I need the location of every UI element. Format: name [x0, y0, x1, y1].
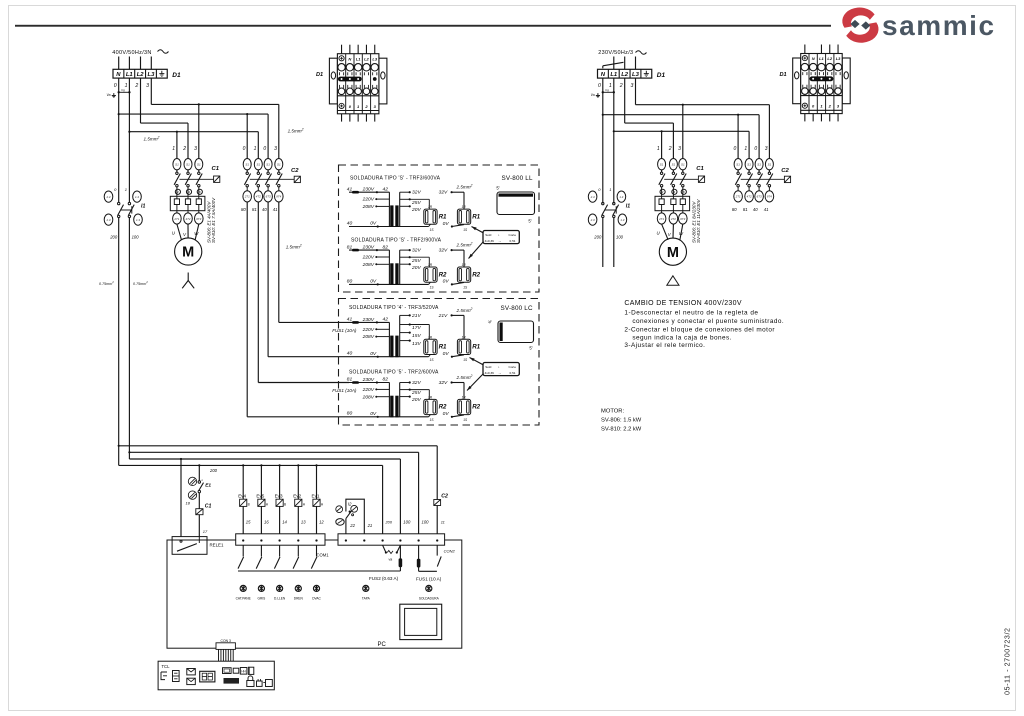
svg-text:1.4: 1.4 — [619, 195, 623, 199]
svg-text:208V: 208V — [362, 262, 375, 268]
svg-text:R1: R1 — [472, 213, 480, 220]
svg-text:S1: S1 — [747, 163, 751, 167]
svg-text:S1: S1 — [672, 163, 676, 167]
svg-text:208V: 208V — [362, 204, 375, 210]
svg-text:1R: 1R — [428, 335, 433, 339]
svg-text:100: 100 — [422, 519, 430, 524]
svg-text:0: 0 — [243, 146, 246, 152]
svg-text:S1: S1 — [175, 163, 179, 167]
svg-text:D1: D1 — [172, 72, 181, 79]
svg-text:0: 0 — [754, 146, 757, 152]
svg-text:11: 11 — [441, 519, 445, 524]
svg-text:42: 42 — [383, 186, 389, 192]
svg-text:21V: 21V — [411, 313, 421, 319]
svg-text:N: N — [116, 72, 121, 78]
svg-text:2T1: 2T1 — [735, 195, 741, 199]
svg-text:32V: 32V — [412, 248, 421, 254]
svg-text:SV-800 LL: SV-800 LL — [502, 175, 534, 182]
svg-text:FUS1 (10A): FUS1 (10A) — [332, 388, 357, 393]
svg-text:220V: 220V — [362, 387, 375, 393]
svg-text:21V: 21V — [438, 313, 448, 319]
svg-text:FUS2 (0.63 A): FUS2 (0.63 A) — [369, 576, 399, 581]
svg-text:6T3: 6T3 — [680, 217, 685, 221]
svg-text:400V/50Hz/3N: 400V/50Hz/3N — [112, 50, 151, 56]
svg-text:1.5mm2: 1.5mm2 — [288, 128, 304, 134]
svg-text:1: 1 — [744, 146, 747, 152]
svg-text:D1: D1 — [316, 72, 323, 78]
svg-text:32V: 32V — [439, 248, 448, 254]
svg-text:S1: S1 — [768, 163, 772, 167]
svg-text:SOLDADURA TIPO '4' - TRF3/520V: SOLDADURA TIPO '4' - TRF3/520VA — [349, 305, 439, 311]
svg-text:3: 3 — [765, 146, 768, 152]
svg-text:220V: 220V — [362, 255, 375, 261]
svg-text:1.4: 1.4 — [135, 195, 139, 199]
svg-text:I2: I2 — [348, 502, 352, 507]
svg-text:80: 80 — [347, 411, 353, 417]
svg-text:SOLDADURA TIPO 'S' - TRF3/600V: SOLDADURA TIPO 'S' - TRF3/600VA — [350, 176, 441, 182]
svg-text:8T4: 8T4 — [767, 195, 772, 199]
svg-text:1R: 1R — [462, 335, 467, 339]
svg-text:82: 82 — [383, 377, 389, 383]
svg-text:1.3: 1.3 — [136, 218, 140, 222]
svg-text:1.5mm2: 1.5mm2 — [286, 244, 302, 250]
svg-text:COM1: COM1 — [317, 552, 330, 557]
svg-text:0: 0 — [598, 83, 601, 89]
svg-text:SV-806: 1.5 kW: SV-806: 1.5 kW — [601, 418, 642, 424]
svg-text:DVAC: DVAC — [312, 597, 321, 601]
svg-text:80: 80 — [241, 207, 246, 212]
svg-text:4x0,36: 4x0,36 — [485, 371, 495, 375]
svg-text:0: 0 — [263, 146, 266, 152]
svg-text:C1: C1 — [212, 166, 220, 172]
svg-text:16: 16 — [264, 520, 269, 525]
svg-text:GRIS: GRIS — [258, 597, 266, 601]
svg-text:0.75mm2: 0.75mm2 — [133, 281, 148, 286]
svg-text:208V: 208V — [362, 334, 375, 340]
svg-text:3: 3 — [274, 146, 277, 152]
svg-text:1: 1 — [125, 187, 127, 192]
svg-text:0: 0 — [734, 146, 737, 152]
svg-text:40: 40 — [347, 220, 353, 226]
svg-text:→: → — [498, 371, 501, 375]
svg-text:25V: 25V — [411, 200, 421, 206]
svg-text:S1: S1 — [736, 163, 740, 167]
svg-text:FUS1 (10A): FUS1 (10A) — [332, 328, 357, 333]
svg-text:220V: 220V — [362, 327, 375, 333]
svg-text:2T1: 2T1 — [658, 217, 664, 221]
svg-text:L1: L1 — [126, 72, 133, 78]
svg-text:conexiones y conectar el puent: conexiones y conectar el puente suminist… — [632, 318, 784, 325]
svg-text:18: 18 — [186, 501, 191, 506]
svg-text:0V: 0V — [443, 221, 450, 227]
svg-text:TAPA: TAPA — [362, 597, 371, 601]
svg-text:I1: I1 — [626, 204, 630, 210]
svg-text:N: N — [348, 56, 351, 61]
svg-text:2T1: 2T1 — [173, 217, 179, 221]
svg-text:40: 40 — [753, 207, 758, 212]
svg-text:3: 3 — [194, 146, 197, 152]
svg-text:PC: PC — [378, 642, 387, 648]
svg-text:05-11 - 2700723/2: 05-11 - 2700723/2 — [1003, 627, 1012, 695]
svg-text:42: 42 — [383, 317, 389, 323]
svg-text:segun indica la caja de bones.: segun indica la caja de bones. — [632, 335, 731, 342]
svg-text:200: 200 — [593, 235, 602, 240]
svg-text:1R: 1R — [428, 395, 433, 399]
svg-text:4T2: 4T2 — [186, 217, 191, 221]
svg-text:1: 1 — [172, 146, 175, 152]
svg-text:S1: S1 — [197, 163, 201, 167]
svg-text:41: 41 — [273, 207, 278, 212]
svg-text:SOLDADURA TIPO 'S' - TRF2/900V: SOLDADURA TIPO 'S' - TRF2/900VA — [351, 238, 442, 244]
svg-text:SOLDADURA TIPO '5' - TRF2/600V: SOLDADURA TIPO '5' - TRF2/600VA — [349, 370, 439, 376]
svg-text:2.3: 2.3 — [105, 218, 110, 222]
svg-text:R2: R2 — [472, 271, 480, 278]
svg-text:→: → — [498, 239, 501, 243]
svg-text:40: 40 — [262, 207, 267, 212]
svg-text:40: 40 — [347, 351, 353, 357]
svg-text:81: 81 — [743, 207, 748, 212]
svg-text:va: va — [389, 558, 393, 562]
svg-text:SV-810: E1 7.5A/400V: SV-810: E1 7.5A/400V — [211, 197, 216, 243]
svg-text:2-Conectar el bloque de conexi: 2-Conectar el bloque de conexiones del m… — [624, 326, 775, 333]
svg-text:0V: 0V — [370, 411, 377, 417]
svg-text:230V/50Hz/3: 230V/50Hz/3 — [598, 50, 633, 56]
svg-text:6T3: 6T3 — [266, 195, 271, 199]
svg-text:sammic: sammic — [882, 10, 996, 41]
svg-text:1: 1 — [657, 146, 660, 152]
svg-text:Cg: Cg — [121, 88, 125, 92]
svg-text:2.5mm2: 2.5mm2 — [456, 242, 473, 248]
svg-text:4T2: 4T2 — [256, 195, 261, 199]
svg-text:L2: L2 — [137, 72, 145, 78]
svg-text:R2: R2 — [439, 404, 447, 411]
svg-text:25V: 25V — [411, 258, 421, 264]
svg-text:13V: 13V — [412, 341, 421, 347]
svg-text:C2: C2 — [781, 168, 789, 174]
svg-text:Ev1: Ev1 — [312, 493, 320, 498]
svg-text:'5': '5' — [529, 346, 533, 351]
svg-text:200: 200 — [385, 519, 393, 524]
svg-text:SOLDADURA: SOLDADURA — [419, 597, 440, 601]
svg-text:2.4: 2.4 — [590, 195, 595, 199]
svg-text:1R: 1R — [462, 205, 467, 209]
svg-text:32V: 32V — [412, 190, 421, 196]
svg-text:2.5mm2: 2.5mm2 — [456, 307, 473, 313]
svg-text:1: 1 — [125, 83, 128, 89]
svg-text:CON2: CON2 — [444, 548, 456, 553]
svg-text:200: 200 — [209, 468, 218, 473]
svg-text:0: 0 — [114, 83, 117, 89]
svg-text:L2: L2 — [364, 56, 369, 61]
svg-text:C1: C1 — [696, 166, 704, 172]
svg-text:B: B — [248, 502, 250, 506]
svg-text:1-Desconectar el neutro de la: 1-Desconectar el neutro de la regleta de — [624, 309, 758, 316]
svg-text:32V: 32V — [439, 190, 448, 196]
svg-text:R1: R1 — [439, 213, 447, 220]
svg-text:C1: C1 — [205, 504, 212, 510]
svg-text:S1: S1 — [277, 163, 281, 167]
svg-text:Ev3: Ev3 — [275, 493, 283, 498]
svg-text:R2: R2 — [439, 271, 447, 278]
svg-text:4T2: 4T2 — [671, 217, 676, 221]
svg-text:2: 2 — [668, 146, 672, 152]
svg-text:208V: 208V — [362, 394, 375, 400]
svg-text:3: 3 — [146, 83, 149, 89]
svg-text:1: 1 — [609, 187, 611, 192]
svg-text:C2: C2 — [291, 168, 299, 174]
svg-text:2.4: 2.4 — [105, 195, 110, 199]
svg-text:Ev4: Ev4 — [238, 493, 246, 498]
svg-text:3: 3 — [631, 83, 634, 89]
svg-text:1: 1 — [254, 146, 257, 152]
svg-text:2: 2 — [182, 146, 186, 152]
svg-text:15V: 15V — [412, 333, 421, 339]
svg-text:20V: 20V — [411, 265, 421, 271]
svg-text:L1: L1 — [356, 56, 361, 61]
svg-text:↓: ↓ — [498, 233, 500, 237]
svg-text:1.3: 1.3 — [620, 218, 624, 222]
svg-text:M: M — [182, 245, 194, 261]
svg-text:2: 2 — [176, 190, 179, 194]
svg-text:20V: 20V — [411, 397, 421, 403]
svg-text:230V: 230V — [362, 187, 375, 193]
svg-text:Va: Va — [591, 93, 595, 97]
svg-text:81: 81 — [252, 207, 257, 212]
svg-text:1.5mm2: 1.5mm2 — [144, 136, 160, 142]
svg-text:Corte: Corte — [509, 233, 517, 237]
svg-text:20V: 20V — [411, 207, 421, 213]
svg-text:L3: L3 — [148, 72, 156, 78]
svg-text:6T3: 6T3 — [196, 217, 201, 221]
svg-text:81: 81 — [347, 244, 353, 250]
svg-text:0V: 0V — [443, 411, 450, 417]
svg-text:M: M — [667, 245, 679, 261]
svg-text:0V: 0V — [370, 221, 377, 227]
svg-text:N: N — [812, 56, 815, 61]
svg-text:1R: 1R — [428, 263, 433, 267]
svg-text:SV-810: E1 11A/230V: SV-810: E1 11A/230V — [696, 198, 701, 243]
svg-text:2.5mm2: 2.5mm2 — [456, 184, 473, 190]
svg-text:Va: Va — [107, 93, 111, 97]
svg-text:R1: R1 — [472, 344, 480, 351]
svg-text:CAT.PANE: CAT.PANE — [236, 597, 251, 601]
svg-text:Cg: Cg — [605, 88, 609, 92]
svg-text:25V: 25V — [411, 390, 421, 396]
svg-text:12: 12 — [319, 520, 324, 525]
svg-text:DREN: DREN — [294, 597, 304, 601]
svg-text:D.LLEN: D.LLEN — [274, 597, 286, 601]
svg-text:0V: 0V — [443, 279, 450, 285]
svg-text:13: 13 — [301, 520, 306, 525]
svg-text:1R: 1R — [462, 263, 467, 267]
svg-text:81: 81 — [347, 377, 353, 383]
svg-text:I1: I1 — [141, 204, 145, 210]
svg-text:2.5mm2: 2.5mm2 — [456, 374, 473, 380]
svg-text:RELE1: RELE1 — [210, 543, 224, 548]
svg-text:0,51: 0,51 — [510, 371, 516, 375]
svg-text:L3: L3 — [632, 72, 640, 78]
svg-text:B: B — [284, 502, 286, 506]
svg-text:22: 22 — [349, 523, 355, 528]
svg-text:200: 200 — [109, 235, 118, 240]
svg-text:2: 2 — [661, 190, 664, 194]
svg-text:S1: S1 — [660, 163, 664, 167]
svg-text:D1: D1 — [780, 72, 787, 78]
svg-text:220V: 220V — [362, 197, 375, 203]
svg-text:0V: 0V — [370, 351, 377, 357]
svg-text:41: 41 — [347, 317, 353, 323]
svg-text:8T4: 8T4 — [276, 195, 281, 199]
svg-text:14: 14 — [282, 520, 287, 525]
svg-text:1: 1 — [609, 83, 612, 89]
svg-text:'4': '4' — [488, 320, 492, 325]
svg-text:'5': '5' — [528, 219, 532, 224]
svg-text:41: 41 — [347, 186, 353, 192]
svg-text:C2: C2 — [441, 494, 448, 500]
svg-text:L1: L1 — [610, 72, 617, 78]
svg-text:32V: 32V — [412, 380, 421, 386]
svg-text:0V: 0V — [370, 279, 377, 285]
svg-text:230V: 230V — [362, 317, 375, 323]
svg-text:17: 17 — [203, 529, 208, 534]
svg-text:S1: S1 — [245, 163, 249, 167]
svg-text:15: 15 — [246, 520, 251, 525]
svg-text:Sold: Sold — [485, 365, 491, 369]
svg-text:2: 2 — [134, 83, 138, 89]
svg-text:↓: ↓ — [498, 365, 500, 369]
svg-text:L3: L3 — [372, 56, 377, 61]
svg-text:82: 82 — [383, 244, 389, 250]
svg-text:230V: 230V — [362, 377, 375, 383]
svg-text:2.3: 2.3 — [590, 218, 595, 222]
svg-text:32V: 32V — [439, 380, 448, 386]
svg-text:80: 80 — [347, 278, 353, 284]
svg-text:L2: L2 — [621, 72, 629, 78]
svg-text:3-Ajustar el rele termico.: 3-Ajustar el rele termico. — [624, 342, 705, 349]
svg-text:Ev2: Ev2 — [293, 493, 301, 498]
svg-text:4x0,36: 4x0,36 — [485, 239, 495, 243]
svg-text:MOTOR:: MOTOR: — [601, 409, 624, 415]
svg-text:21: 21 — [367, 523, 373, 528]
svg-text:3: 3 — [678, 146, 681, 152]
svg-text:S1: S1 — [256, 163, 260, 167]
svg-text:Ev5: Ev5 — [256, 493, 264, 498]
svg-text:100: 100 — [403, 519, 411, 524]
svg-text:S1: S1 — [681, 163, 685, 167]
svg-text:230V: 230V — [362, 245, 375, 251]
svg-text:S1: S1 — [186, 163, 190, 167]
svg-text:4T2: 4T2 — [747, 195, 752, 199]
svg-text:0,51: 0,51 — [510, 239, 516, 243]
svg-text:41: 41 — [764, 207, 769, 212]
svg-text:E1: E1 — [205, 483, 211, 489]
svg-text:1R: 1R — [462, 395, 467, 399]
svg-text:Corte: Corte — [509, 365, 517, 369]
svg-text:CAMBIO DE TENSION 400V/230V: CAMBIO DE TENSION 400V/230V — [624, 300, 741, 307]
svg-text:D1: D1 — [657, 72, 666, 79]
svg-text:100: 100 — [132, 235, 140, 240]
svg-text:Sold: Sold — [485, 233, 491, 237]
svg-text:R1: R1 — [439, 344, 447, 351]
svg-text:TCL: TCL — [162, 664, 171, 669]
svg-text:17V: 17V — [412, 325, 421, 331]
svg-text:80: 80 — [732, 207, 737, 212]
svg-text:0.75mm2: 0.75mm2 — [99, 281, 114, 286]
svg-text:N: N — [601, 72, 606, 78]
svg-text:L1: L1 — [819, 56, 824, 61]
svg-text:0V: 0V — [443, 351, 450, 357]
svg-text:S1: S1 — [757, 163, 761, 167]
svg-text:SV-800 LC: SV-800 LC — [501, 305, 534, 312]
svg-text:SV-810: 2.2 kW: SV-810: 2.2 kW — [601, 426, 642, 432]
svg-text:L2: L2 — [827, 56, 832, 61]
svg-text:6T3: 6T3 — [757, 195, 762, 199]
svg-text:CON 3: CON 3 — [221, 639, 231, 643]
svg-text:HH: HH — [241, 670, 246, 674]
svg-text:1R: 1R — [428, 205, 433, 209]
svg-text:L3: L3 — [836, 56, 841, 61]
svg-text:S1: S1 — [266, 163, 270, 167]
svg-text:FUS1 (10 A): FUS1 (10 A) — [416, 576, 442, 581]
svg-text:100: 100 — [616, 235, 624, 240]
svg-text:'5': '5' — [496, 186, 500, 191]
svg-text:R2: R2 — [472, 404, 480, 411]
svg-text:2T1: 2T1 — [244, 195, 250, 199]
svg-text:2: 2 — [619, 83, 623, 89]
